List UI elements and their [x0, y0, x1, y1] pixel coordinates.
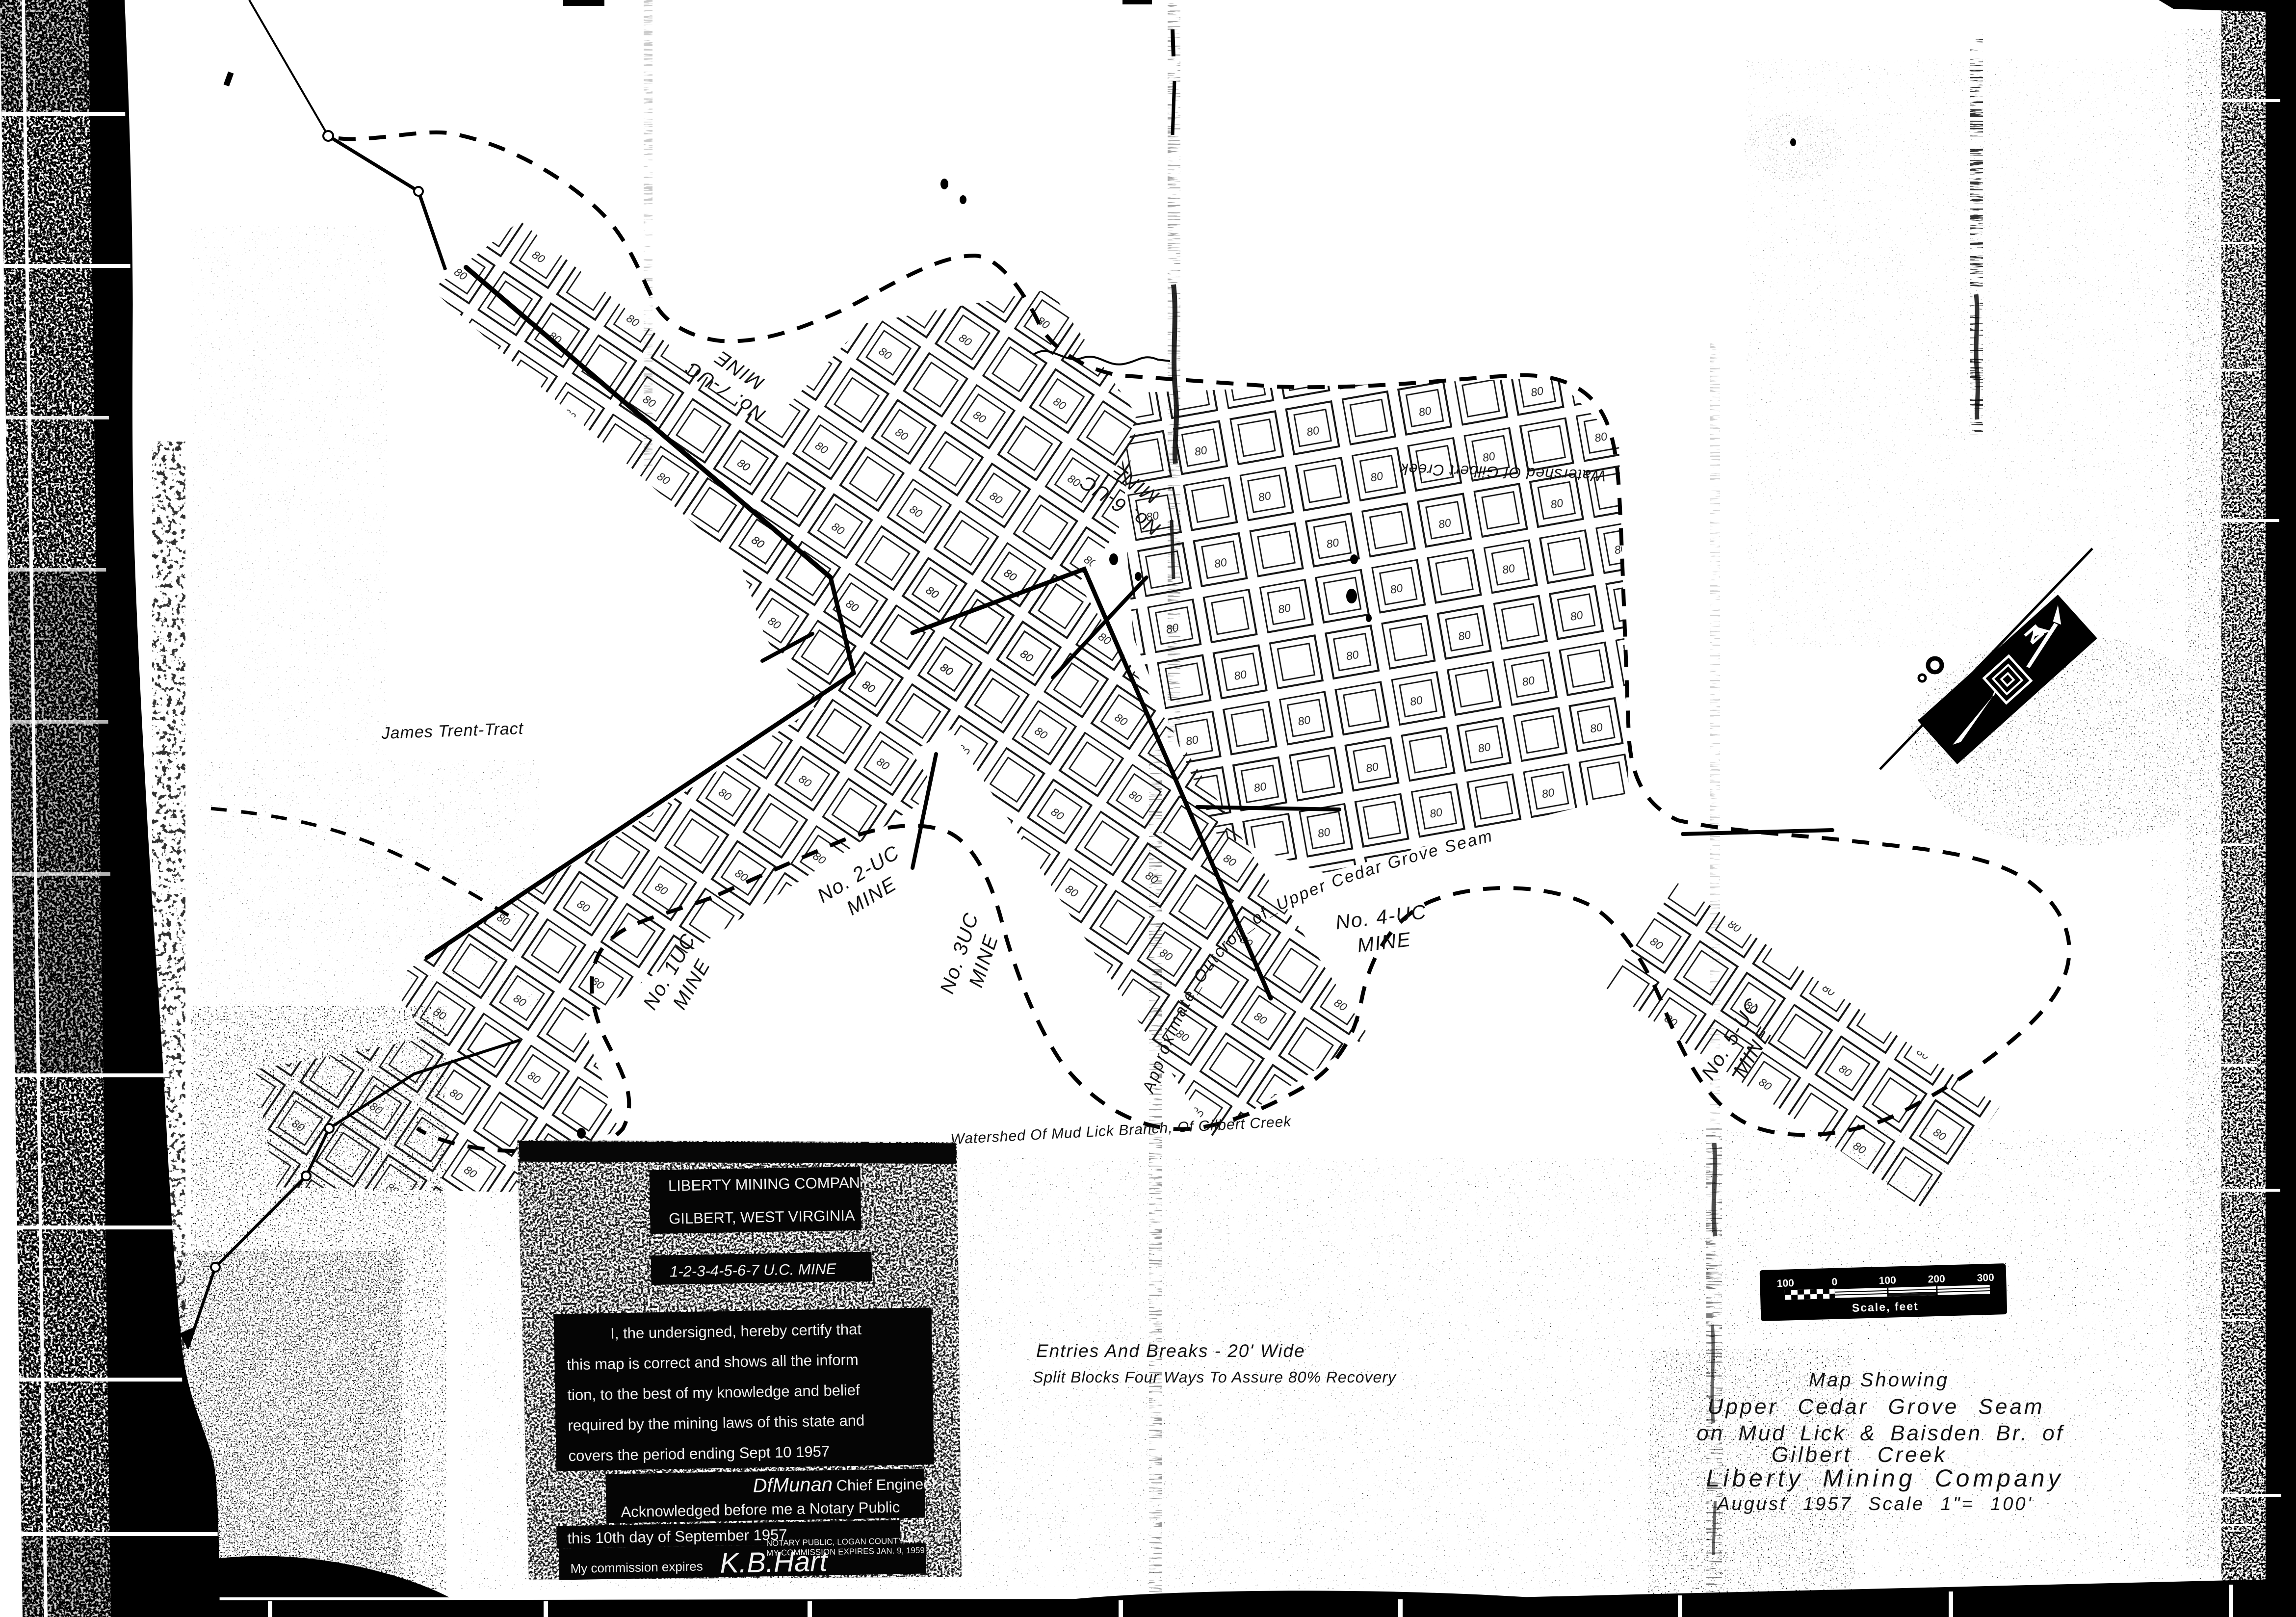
svg-text:1-2-3-4-5-6-7 U.C. MINE: 1-2-3-4-5-6-7 U.C. MINE	[670, 1260, 836, 1280]
svg-text:Map Showing: Map Showing	[1809, 1369, 1949, 1391]
svg-text:LIBERTY MINING COMPANY: LIBERTY MINING COMPANY	[668, 1174, 870, 1194]
svg-text:August 1957 Scale 1"= 100': August 1957 Scale 1"= 100'	[1716, 1494, 2033, 1514]
svg-text:Scale, feet: Scale, feet	[1852, 1300, 1919, 1314]
svg-text:GILBERT, WEST VIRGINIA: GILBERT, WEST VIRGINIA	[669, 1207, 855, 1227]
svg-text:Liberty Mining Company: Liberty Mining Company	[1706, 1464, 2063, 1492]
svg-text:Upper Cedar Grove Seam: Upper Cedar Grove Seam	[1707, 1395, 2044, 1419]
svg-text:DfMunan: DfMunan	[753, 1474, 833, 1497]
svg-text:Entries And Breaks - 20' Wid: Entries And Breaks - 20' Wide	[1036, 1341, 1305, 1361]
svg-text:300: 300	[1977, 1272, 1994, 1284]
svg-text:My commission expires: My commission expires	[570, 1559, 703, 1576]
svg-text:Split Blocks Four Ways To Assu: Split Blocks Four Ways To Assure 80% Rec…	[1033, 1368, 1397, 1386]
svg-text:100: 100	[1777, 1278, 1795, 1289]
svg-text:200: 200	[1928, 1274, 1945, 1285]
svg-text:on Mud Lick & Baisden Br. of: on Mud Lick & Baisden Br. of	[1696, 1421, 2065, 1445]
svg-text:Gilbert Creek: Gilbert Creek	[1772, 1443, 1947, 1467]
svg-text:0: 0	[1831, 1277, 1837, 1288]
svg-text:100: 100	[1879, 1275, 1896, 1286]
svg-text:Chief Engineer: Chief Engineer	[836, 1475, 937, 1494]
